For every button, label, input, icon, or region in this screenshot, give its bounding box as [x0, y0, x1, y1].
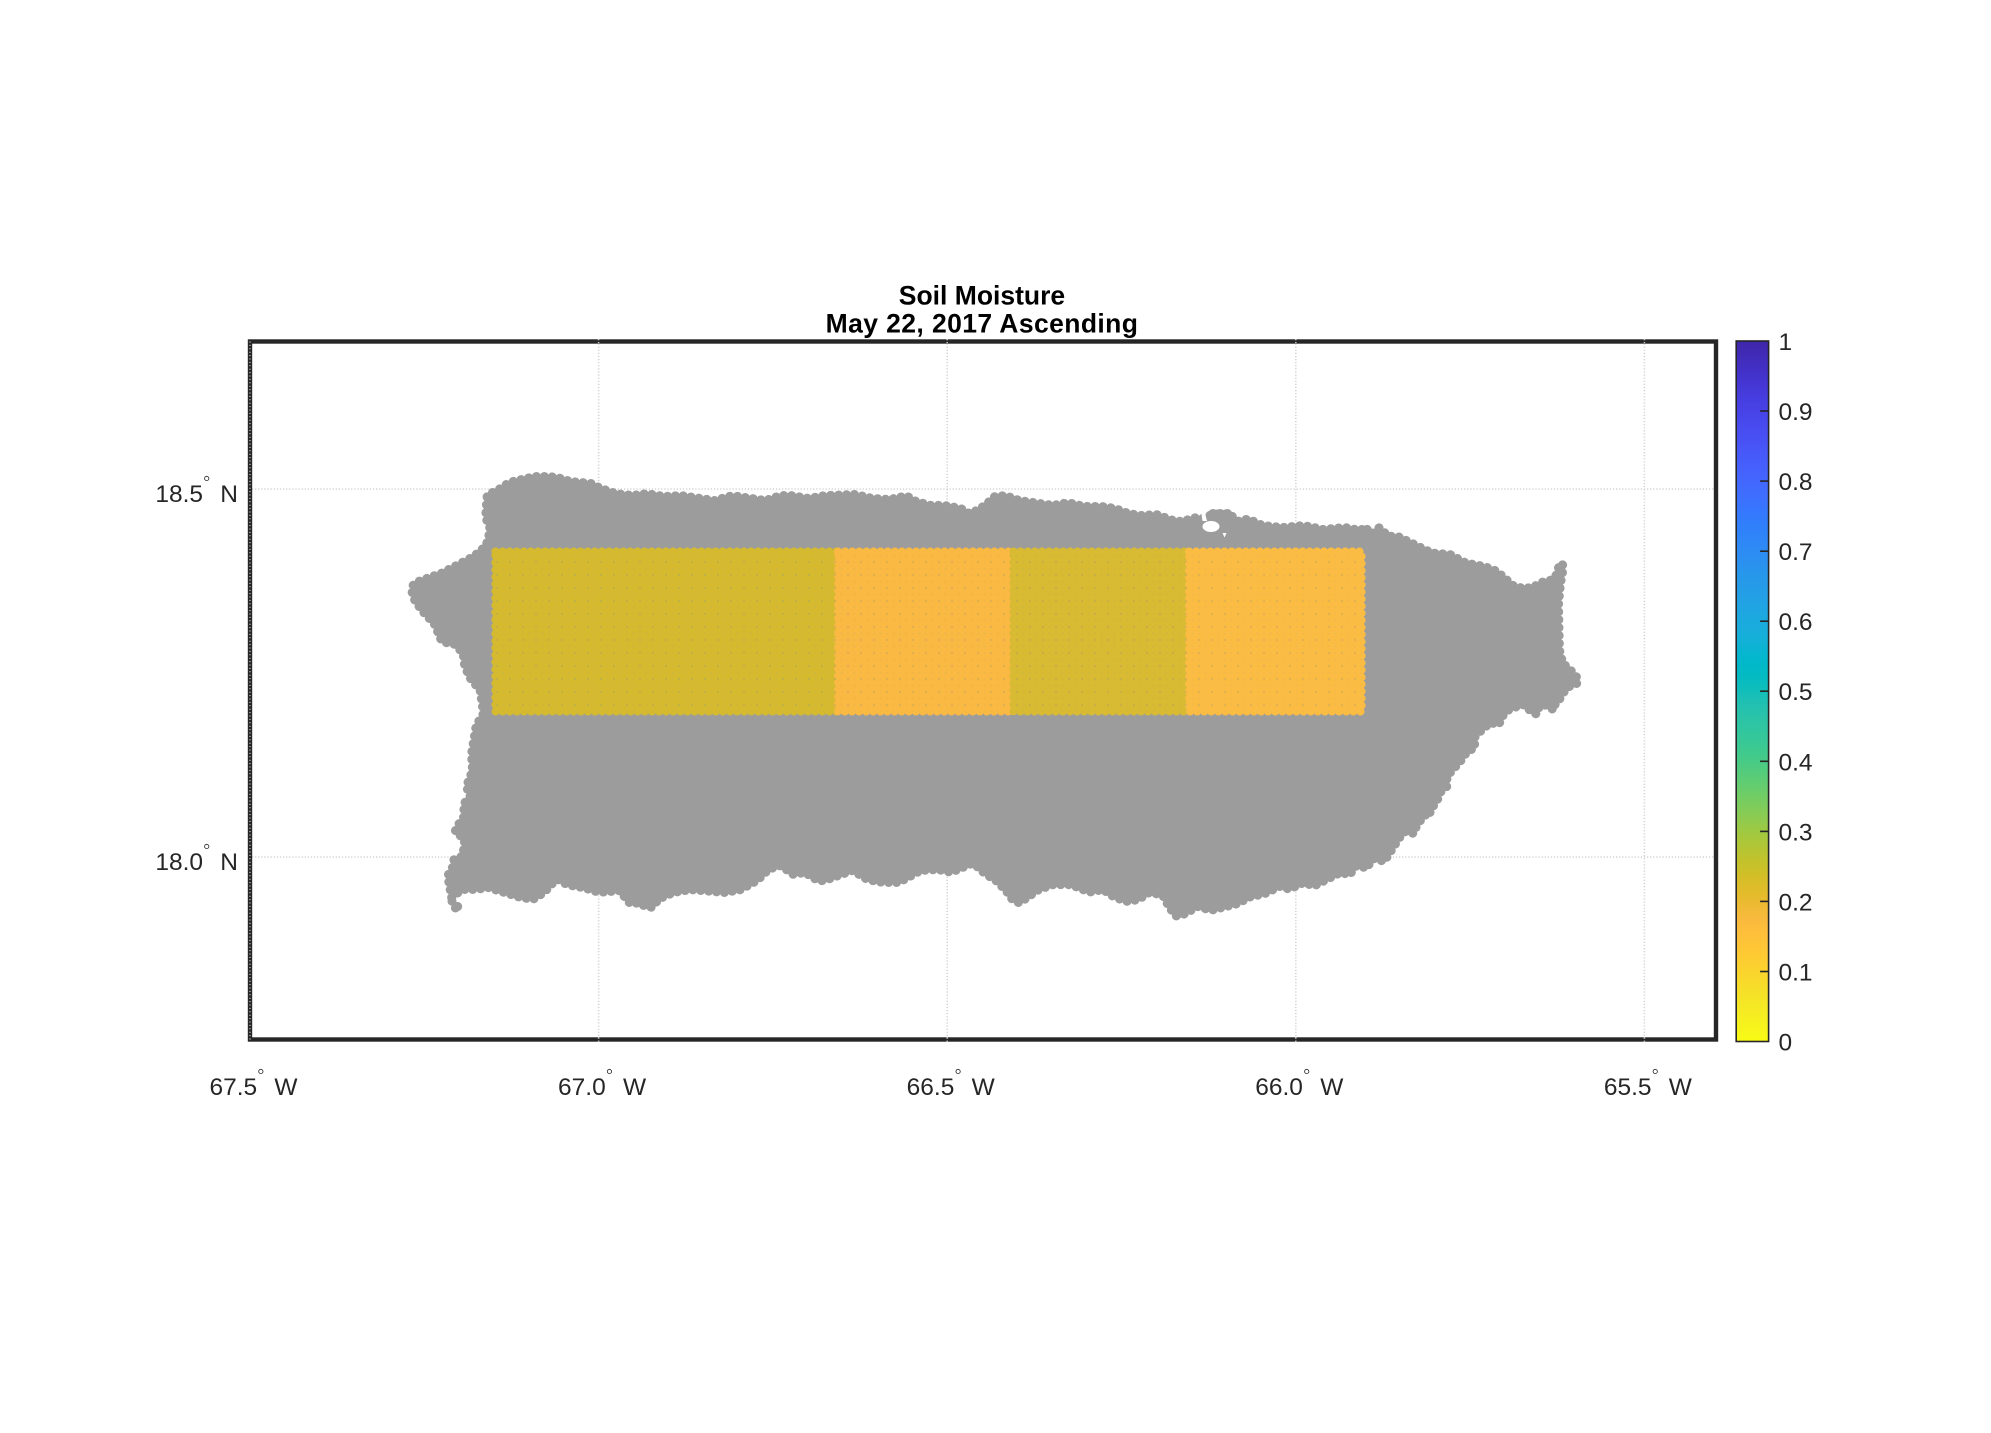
svg-text:May 22, 2017 Ascending: May 22, 2017 Ascending — [826, 309, 1139, 339]
svg-text:0.4: 0.4 — [1779, 749, 1813, 776]
svg-text:0.7: 0.7 — [1779, 539, 1813, 566]
svg-text:0.3: 0.3 — [1779, 819, 1813, 846]
svg-text:0.8: 0.8 — [1779, 469, 1813, 496]
svg-text:0.9: 0.9 — [1779, 399, 1813, 426]
svg-text:0.1: 0.1 — [1779, 960, 1813, 987]
svg-text:0.2: 0.2 — [1779, 889, 1813, 916]
svg-text:0.6: 0.6 — [1779, 609, 1813, 636]
svg-text:0.5: 0.5 — [1779, 679, 1813, 706]
svg-text:Soil Moisture: Soil Moisture — [899, 281, 1065, 311]
svg-text:1: 1 — [1779, 329, 1793, 356]
svg-text:0: 0 — [1779, 1030, 1793, 1057]
